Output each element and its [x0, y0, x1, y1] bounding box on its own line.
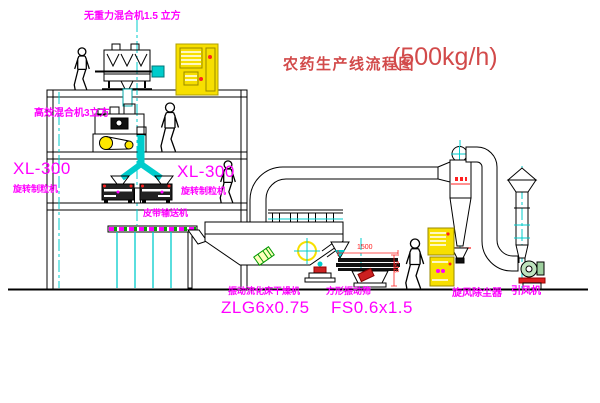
label-screen-name: 方形振动筛 [326, 287, 371, 296]
worker-figure-screen [406, 239, 424, 288]
label-cyclone: 旋风除尘器 [452, 289, 502, 299]
label-screen-model: FS0.6x1.5 [331, 299, 413, 316]
dryer-motor [314, 267, 326, 273]
drawing-capacity: (500kg/h) [392, 43, 498, 72]
label-fan: 引风机 [511, 287, 541, 297]
belt-conveyor [108, 226, 207, 288]
cabinet-symbol [436, 269, 440, 273]
vibrating-screen [336, 250, 400, 287]
label-belt-conveyor: 皮带输送机 [143, 209, 188, 218]
belt-pulley [100, 137, 113, 150]
cyclone-outlet-pipe [466, 147, 518, 271]
label-dryer-model: ZLG6x0.75 [221, 299, 310, 316]
cabinet-symbol [441, 269, 445, 273]
fan-motor [537, 262, 544, 275]
mixer-discharge-funnel [121, 81, 133, 89]
building-mid-slab [47, 152, 247, 159]
fan-base [519, 278, 545, 283]
granulator-left [102, 176, 134, 203]
duct-reducer [438, 162, 450, 182]
control-cabinet-right [428, 228, 454, 286]
cyclone-discharge [456, 258, 464, 263]
conveyor-legs [117, 232, 171, 288]
control-cabinet-top [176, 44, 218, 95]
belt-pulley [125, 141, 133, 149]
label-dryer-name: 振动流化床干燥机 [228, 287, 300, 296]
feed-pipe [123, 89, 132, 106]
fluid-bed-dryer [205, 210, 343, 282]
dim-screen-height: 548 [392, 261, 399, 273]
worker-figure-mid [161, 103, 179, 152]
mixer-coupling [152, 66, 164, 77]
granulator-right [140, 176, 173, 203]
chute-support [188, 232, 192, 288]
induced-draft-fan [519, 261, 545, 289]
label-granulator-mid-name: 旋转制粒机 [181, 187, 226, 196]
valve-dot [318, 262, 323, 267]
indicator-dot [199, 77, 203, 81]
label-granulator-mid-model: XL-300 [177, 163, 235, 180]
pesticide-production-line-drawing: 农药生产线流程图 (500kg/h) 无重力混合机1.5 立方 高效混合机3立方… [0, 0, 600, 403]
label-mid-mixer: 高效混合机3立方 [34, 109, 110, 119]
label-top-mixer: 无重力混合机1.5 立方 [84, 12, 181, 22]
indicator-dot [208, 55, 212, 59]
stack-cap [508, 168, 536, 180]
label-granulator-left-name: 旋转制粒机 [13, 185, 58, 194]
label-granulator-left-model: XL-300 [13, 160, 71, 177]
worker-figure-top [74, 48, 89, 90]
dim-screen-length: 1500 [357, 244, 373, 251]
